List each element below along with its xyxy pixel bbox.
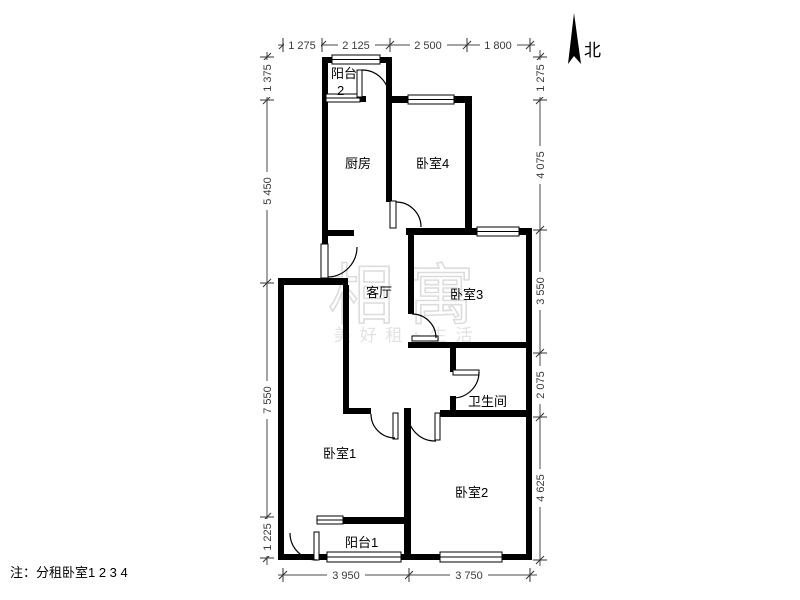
door-leaf-balcony1 bbox=[314, 532, 319, 560]
door-leaf-kitchen bbox=[321, 244, 328, 278]
door-leaf-balcony2 bbox=[357, 70, 362, 97]
room-label-kitchen: 厨房 bbox=[345, 156, 371, 171]
dim-right-5: 4 625 bbox=[535, 474, 547, 502]
dim-top-4: 1 800 bbox=[484, 40, 512, 52]
room-label-balcony1: 阳台1 bbox=[345, 535, 378, 550]
room-label-living: 客厅 bbox=[366, 285, 392, 300]
room-label-bedroom2: 卧室2 bbox=[455, 485, 488, 500]
dim-top-3: 2 500 bbox=[414, 40, 442, 52]
door-arc-balcony2 bbox=[362, 70, 389, 97]
door-leaf-bedroom3 bbox=[412, 336, 438, 341]
north-arrow-icon bbox=[568, 13, 581, 64]
room-label-bedroom1: 卧室1 bbox=[323, 446, 356, 461]
door-leaf-bathroom bbox=[453, 370, 479, 375]
dim-right-3: 3 550 bbox=[535, 277, 547, 305]
dim-left-1: 1 375 bbox=[262, 64, 274, 92]
floor-plan-page: 相寓 美 好 租 + 生 活 阳台 2 厨房 卧室4 客厅 卧室3 bbox=[0, 0, 800, 600]
room-label-balcony2-number: 2 bbox=[337, 83, 344, 98]
dim-left-3: 7 550 bbox=[262, 386, 274, 414]
floor-plan-canvas: 相寓 美 好 租 + 生 活 阳台 2 厨房 卧室4 客厅 卧室3 bbox=[0, 0, 800, 600]
dim-bottom-2: 3 750 bbox=[455, 570, 483, 582]
door-arc-bedroom2 bbox=[408, 414, 436, 441]
dim-left-2: 5 450 bbox=[262, 177, 274, 205]
door-leaf-bedroom4 bbox=[390, 201, 396, 228]
dim-right-1: 1 275 bbox=[535, 64, 547, 92]
north-arrow: 北 bbox=[568, 13, 601, 64]
dimension-left: 1 375 5 450 7 550 1 225 bbox=[260, 52, 274, 565]
north-arrow-label: 北 bbox=[584, 41, 601, 60]
room-label-balcony2: 阳台 bbox=[331, 66, 357, 81]
dim-right-2: 4 075 bbox=[535, 151, 547, 179]
door-arc-bedroom4 bbox=[396, 202, 421, 227]
room-label-bedroom4: 卧室4 bbox=[416, 156, 449, 171]
dim-top-2: 2 125 bbox=[342, 40, 370, 52]
dimension-right: 1 275 4 075 3 550 2 075 4 625 bbox=[533, 50, 547, 566]
dim-bottom-1: 3 950 bbox=[332, 570, 360, 582]
dimension-top: 1 275 2 125 2 500 1 800 bbox=[278, 38, 535, 52]
door-leaf-bedroom1 bbox=[393, 413, 398, 439]
dimension-bottom: 3 950 3 750 bbox=[278, 568, 537, 582]
note-text: 注：分租卧室1 2 3 4 bbox=[10, 565, 128, 580]
door-arc-bedroom1 bbox=[371, 414, 395, 438]
dim-right-4: 2 075 bbox=[535, 371, 547, 399]
room-label-bathroom: 卫生间 bbox=[468, 394, 507, 409]
door-leaf-bedroom2 bbox=[435, 413, 440, 440]
dim-left-4: 1 225 bbox=[262, 523, 274, 551]
dim-top-1: 1 275 bbox=[288, 40, 316, 52]
room-label-bedroom3: 卧室3 bbox=[450, 287, 483, 302]
